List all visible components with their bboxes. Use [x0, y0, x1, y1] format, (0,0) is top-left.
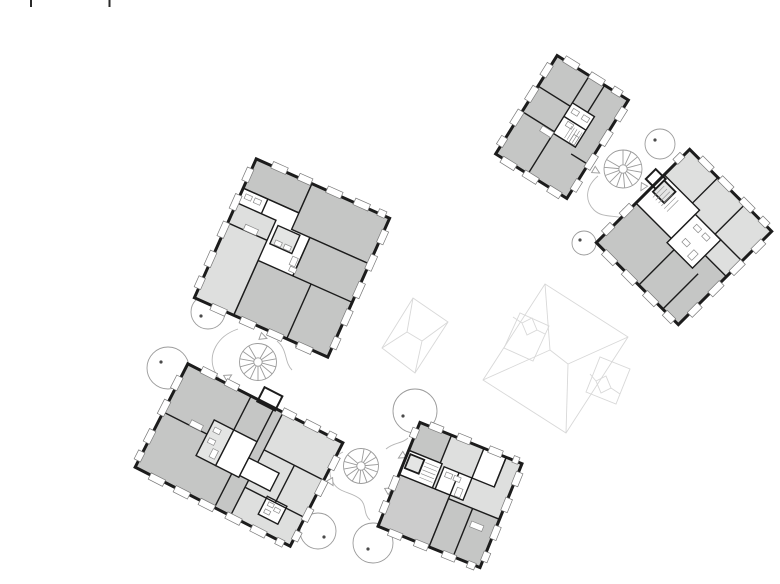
stair-tread-line [240, 359, 254, 361]
tree-trunk-dot [366, 547, 369, 550]
tree [645, 129, 675, 159]
roof-outline [483, 284, 628, 433]
garden-path-line [386, 438, 408, 449]
tree-trunk-dot [401, 414, 404, 417]
building-south-west [129, 349, 354, 552]
stair-tread-line [607, 160, 620, 167]
dormer-edge-line [537, 330, 545, 334]
dormer-top-outline [522, 318, 537, 335]
spiral-staircase [344, 449, 379, 484]
building-east [586, 139, 778, 331]
tree [572, 231, 596, 255]
stair-tread-line [627, 164, 641, 168]
site-plan-drawing [0, 0, 780, 584]
stair-tread-line [344, 461, 357, 464]
tree-canopy-circle [645, 129, 675, 159]
tree-trunk-dot [653, 138, 656, 141]
tree-trunk-dot [159, 360, 162, 363]
roof-hip-line [422, 322, 448, 341]
spiral-staircase [604, 150, 642, 188]
roof-eave-outline [483, 284, 628, 433]
stair-newel-circle [619, 165, 627, 173]
dormer-edge-line [611, 388, 620, 394]
building-south [372, 416, 528, 573]
roof-hip-line [545, 284, 550, 350]
stair-tread-line [627, 170, 642, 173]
roof-hip-line [550, 350, 568, 364]
stair-newel-circle [254, 358, 262, 366]
dormer-top-outline [596, 376, 611, 393]
roof-hip-line [407, 332, 422, 341]
tree-trunk-dot [199, 314, 202, 317]
site-plan-canvas [0, 0, 780, 584]
stair-tread-line [604, 167, 619, 168]
stair-tread-line [623, 173, 624, 188]
tree-canopy-circle [572, 231, 596, 255]
roof-eave-outline [382, 298, 448, 373]
tree-trunk-dot [322, 535, 325, 538]
spiral-staircase [240, 344, 277, 381]
stair-newel-circle [357, 462, 365, 470]
garden-path-line [277, 341, 292, 370]
stair-tread-line [365, 464, 378, 465]
stair-tread-line [240, 363, 254, 367]
building-north-east [489, 49, 635, 205]
stair-tread-line [362, 449, 364, 462]
stair-tread-line [262, 359, 276, 361]
stair-tread-line [344, 467, 357, 469]
tree-trunk-dot [578, 238, 581, 241]
stair-tread-line [262, 363, 276, 367]
roof-hip-line [382, 332, 407, 348]
building-west [188, 153, 396, 364]
stair-tread-line [359, 470, 360, 483]
entrance-arrow [592, 166, 602, 176]
roof-hip-line [566, 364, 568, 433]
roof-dormer-outline [586, 357, 630, 404]
roof-outline [382, 298, 448, 373]
stair-tread-line [348, 455, 358, 464]
